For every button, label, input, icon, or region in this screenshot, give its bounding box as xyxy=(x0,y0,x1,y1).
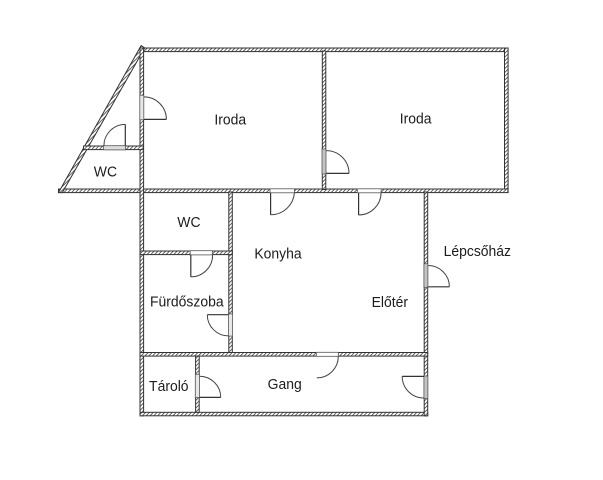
svg-text:Konyha: Konyha xyxy=(254,246,302,263)
svg-text:Előtér: Előtér xyxy=(372,294,409,311)
svg-text:Iroda: Iroda xyxy=(214,112,247,129)
svg-text:WC: WC xyxy=(177,215,200,232)
svg-text:WC: WC xyxy=(94,164,117,181)
svg-text:Tároló: Tároló xyxy=(149,379,189,396)
svg-text:Fürdőszoba: Fürdőszoba xyxy=(150,294,225,311)
svg-text:Lépcsőház: Lépcsőház xyxy=(444,243,511,260)
svg-text:Iroda: Iroda xyxy=(400,111,433,128)
svg-text:Gang: Gang xyxy=(268,376,302,393)
